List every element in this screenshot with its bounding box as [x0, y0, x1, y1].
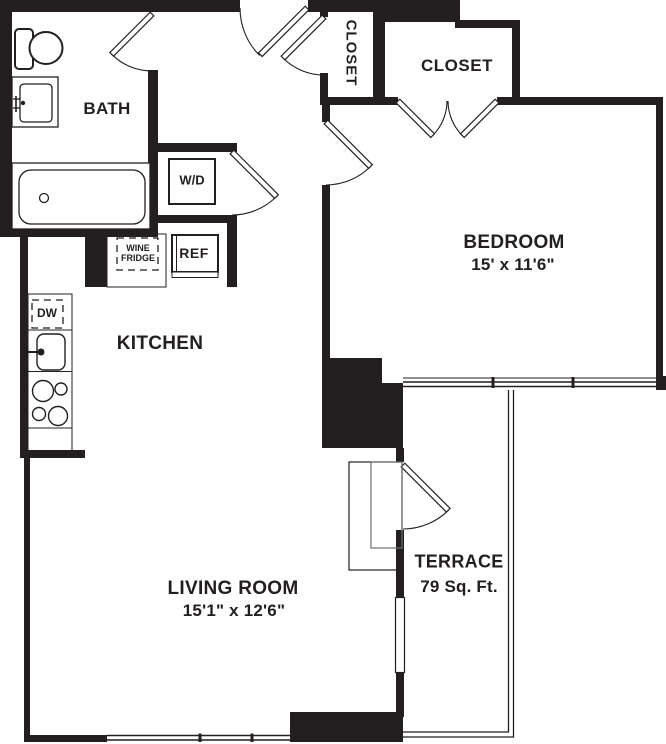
wall — [28, 450, 85, 458]
door-swing-closet-bedroom-left — [396, 99, 447, 137]
refrigerator-label: REF — [179, 245, 209, 261]
room-label-terrace: TERRACE — [414, 552, 503, 573]
window-living-room — [107, 734, 290, 743]
room-label-bath: BATH — [83, 99, 130, 119]
wall — [373, 0, 460, 22]
wall — [320, 73, 328, 101]
dishwasher-label: DW — [37, 307, 57, 321]
door-swing-bath — [110, 12, 154, 71]
wall — [396, 448, 404, 462]
floorplan: BATH W/D CLOSET CLOSET BEDROOM 15' x 11'… — [0, 0, 666, 744]
wall — [24, 735, 107, 742]
wall — [320, 97, 398, 105]
wall — [455, 20, 520, 28]
column — [322, 383, 403, 448]
wine-fridge-label-line2: FRIDGE — [121, 253, 155, 263]
bathtub-icon — [12, 163, 150, 229]
room-label-closet-hall: CLOSET — [342, 20, 359, 87]
wall — [396, 530, 404, 598]
wall — [497, 97, 663, 105]
washer-dryer-label: W/D — [179, 174, 204, 189]
kitchen-sink-icon — [28, 334, 65, 370]
wall — [153, 143, 237, 152]
bedroom-dimensions: 15' x 11'6" — [471, 255, 555, 275]
wall — [656, 376, 666, 390]
wall — [656, 97, 663, 382]
room-label-living: LIVING ROOM — [167, 578, 298, 600]
wall — [0, 0, 12, 237]
room-label-closet-bedroom: CLOSET — [421, 56, 493, 76]
door-swing-wd — [230, 150, 278, 215]
doors — [110, 6, 499, 529]
room-label-bedroom: BEDROOM — [463, 232, 564, 254]
wine-fridge-label-line1: WINE — [126, 243, 150, 253]
wall — [153, 215, 230, 223]
door-swing-closet-bedroom-right — [448, 99, 499, 137]
bath-sink-icon — [12, 77, 58, 127]
wall — [322, 105, 330, 122]
wine-fridge-label: WINEFRIDGE — [121, 243, 155, 263]
wall — [322, 185, 330, 358]
wall — [85, 235, 107, 287]
door-swing-entry — [240, 6, 309, 56]
living-dimensions: 15'1" x 12'6" — [183, 601, 285, 621]
terrace-door-panels — [349, 462, 402, 570]
wall — [290, 712, 403, 742]
window-bedroom — [403, 377, 656, 390]
wall — [512, 20, 520, 105]
wall — [396, 672, 404, 717]
wall — [377, 22, 385, 105]
window-terrace-wall — [396, 598, 405, 673]
wall — [227, 215, 237, 287]
stove-icon — [33, 381, 68, 426]
wall — [0, 0, 240, 12]
door-swing-bedroom — [324, 120, 372, 185]
toilet-icon — [15, 29, 63, 69]
terrace-area: 79 Sq. Ft. — [420, 577, 498, 597]
door-swing-terrace — [401, 463, 450, 529]
wall — [308, 0, 373, 12]
wall — [24, 458, 30, 742]
column — [322, 358, 382, 385]
room-label-kitchen: KITCHEN — [117, 333, 204, 355]
wall — [20, 230, 28, 458]
